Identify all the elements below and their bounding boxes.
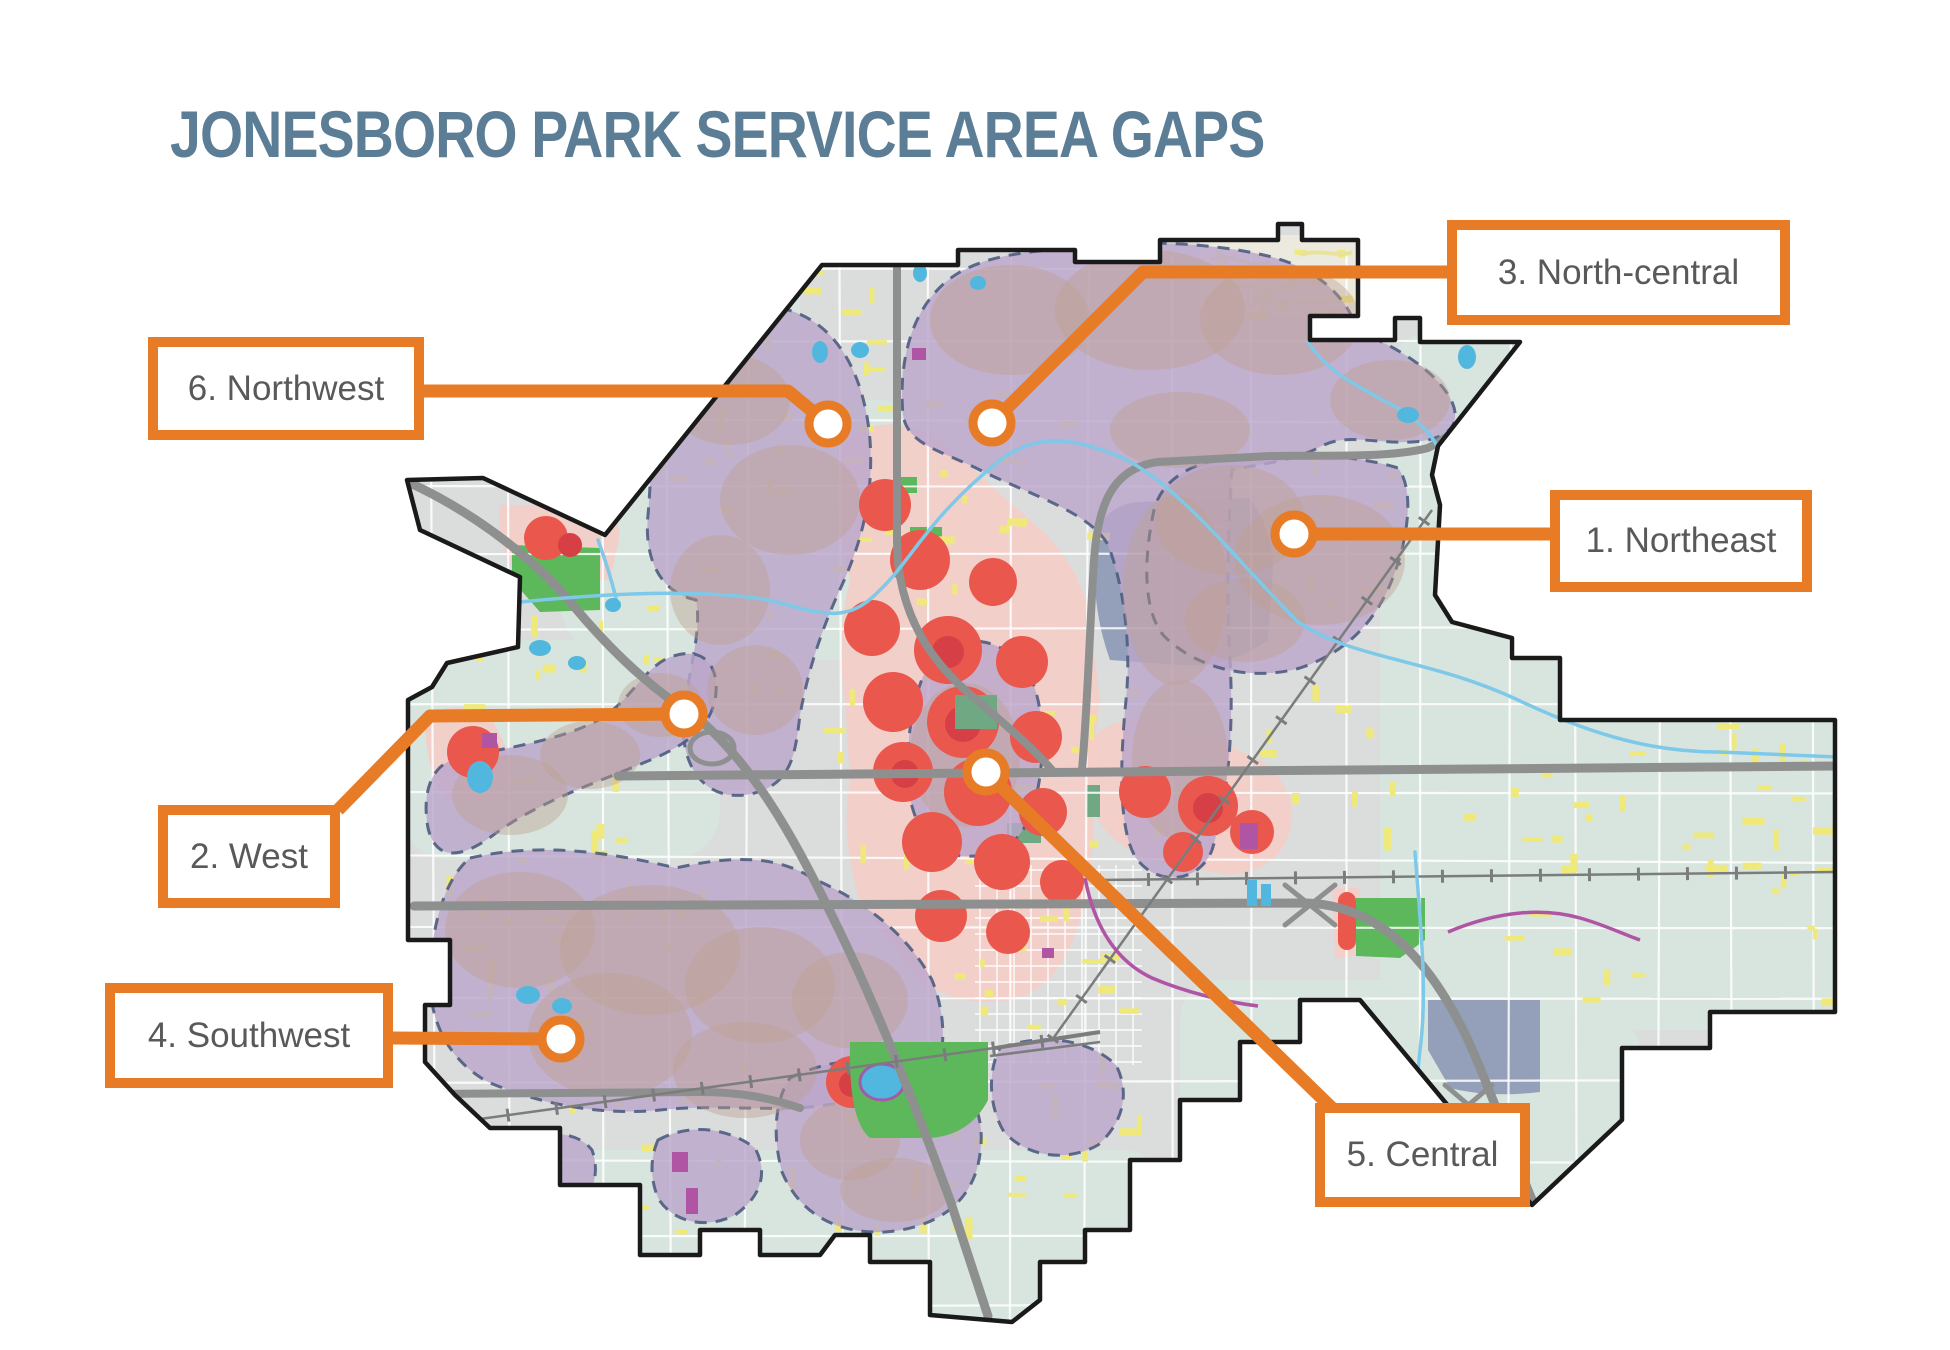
marker-northwest — [809, 405, 847, 443]
callout-southwest: 4. Southwest — [105, 983, 393, 1088]
callout-west: 2. West — [158, 805, 340, 908]
gap-area-south-c — [652, 1130, 762, 1223]
callout-north-central-label: 3. North-central — [1498, 253, 1739, 293]
callout-north-central: 3. North-central — [1447, 220, 1790, 325]
connector-southwest — [391, 1038, 561, 1039]
callout-central: 5. Central — [1315, 1103, 1530, 1207]
marker-central — [967, 753, 1005, 791]
callout-northwest-label: 6. Northwest — [188, 369, 384, 409]
marker-north-central — [973, 404, 1011, 442]
marker-southwest — [542, 1020, 580, 1058]
marker-west — [665, 695, 703, 733]
callout-northwest: 6. Northwest — [148, 337, 424, 440]
gap-area-south-d — [520, 1134, 595, 1213]
park-service-area-gaps-infographic: JONESBORO PARK SERVICE AREA GAPS 1. Nort… — [0, 0, 1950, 1350]
marker-northeast — [1275, 515, 1313, 553]
page-title: JONESBORO PARK SERVICE AREA GAPS — [170, 96, 1264, 172]
callout-central-label: 5. Central — [1347, 1135, 1499, 1175]
callout-west-label: 2. West — [190, 837, 308, 877]
gap-area-south-b — [991, 1040, 1123, 1156]
jonesboro-city-map — [0, 0, 1950, 1350]
callout-southwest-label: 4. Southwest — [148, 1016, 350, 1056]
callout-northeast-label: 1. Northeast — [1586, 521, 1777, 561]
callout-northeast: 1. Northeast — [1550, 490, 1812, 592]
